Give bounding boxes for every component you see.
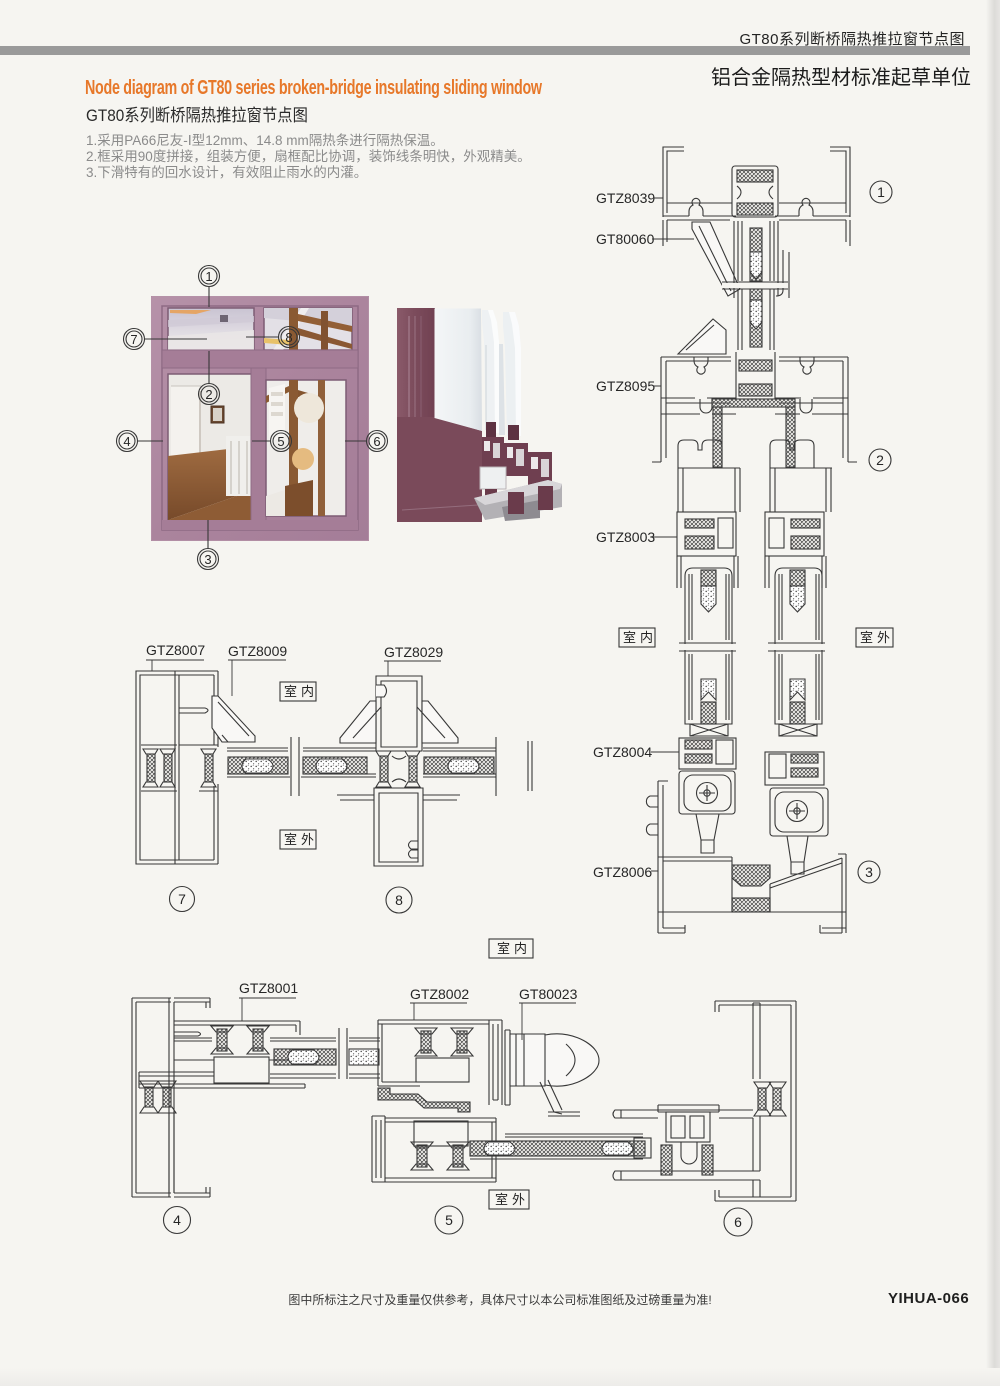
svg-text:7: 7	[130, 332, 137, 347]
svg-text:GT80023: GT80023	[519, 986, 578, 1002]
svg-text:1: 1	[877, 184, 885, 200]
svg-text:GTZ8003: GTZ8003	[596, 529, 655, 545]
svg-text:8: 8	[285, 330, 292, 345]
svg-text:GTZ8029: GTZ8029	[384, 644, 443, 660]
svg-text:GTZ8039: GTZ8039	[596, 190, 655, 206]
svg-text:GTZ8006: GTZ8006	[593, 864, 652, 880]
svg-text:室内: 室内	[623, 630, 657, 645]
svg-text:室外: 室外	[495, 1192, 529, 1207]
svg-text:室内: 室内	[284, 684, 318, 699]
svg-text:4: 4	[173, 1212, 181, 1228]
svg-text:3: 3	[204, 552, 211, 567]
svg-text:2: 2	[876, 452, 884, 468]
svg-text:GTZ8007: GTZ8007	[146, 642, 205, 658]
svg-text:室内: 室内	[497, 941, 531, 956]
svg-text:6: 6	[373, 434, 380, 449]
svg-text:GTZ8004: GTZ8004	[593, 744, 652, 760]
svg-text:5: 5	[277, 434, 284, 449]
svg-text:8: 8	[395, 892, 403, 908]
svg-text:1: 1	[205, 269, 212, 284]
svg-text:6: 6	[734, 1214, 742, 1230]
svg-text:GTZ8095: GTZ8095	[596, 378, 655, 394]
svg-text:7: 7	[178, 891, 186, 907]
svg-text:室外: 室外	[860, 630, 894, 645]
svg-text:4: 4	[123, 434, 130, 449]
svg-text:5: 5	[445, 1212, 453, 1228]
svg-text:2: 2	[205, 387, 212, 402]
svg-text:3: 3	[865, 864, 873, 880]
svg-text:GTZ8002: GTZ8002	[410, 986, 469, 1002]
svg-text:GTZ8001: GTZ8001	[239, 980, 298, 996]
svg-text:GT80060: GT80060	[596, 231, 655, 247]
svg-text:GTZ8009: GTZ8009	[228, 643, 287, 659]
svg-text:室外: 室外	[284, 832, 318, 847]
